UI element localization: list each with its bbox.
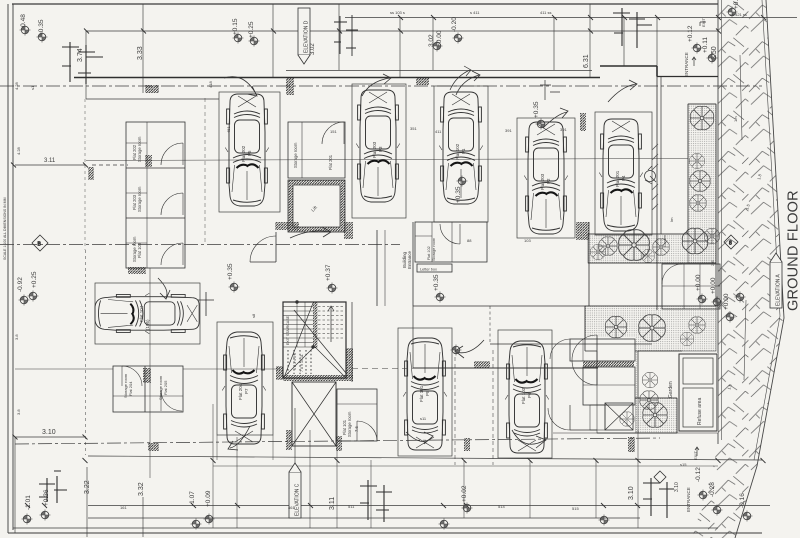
svg-text:P7: P7 [244,388,249,394]
svg-text:Flat 203: Flat 203 [540,173,545,190]
svg-text:+0.12: +0.12 [687,25,694,42]
svg-text:Flat 201: Flat 201 [328,154,333,170]
svg-text:ss 103 s: ss 103 s [390,10,405,15]
svg-text:3.11: 3.11 [44,158,56,164]
svg-text:Storage room: Storage room [137,136,142,162]
svg-text:3.22: 3.22 [84,480,91,494]
svg-text:411 ss: 411 ss [540,10,552,15]
svg-text:Letter box: Letter box [420,268,437,272]
svg-text:ss 421 ss: ss 421 ss [730,12,747,17]
svg-text:+0.00: +0.00 [723,293,730,310]
svg-text:6.31: 6.31 [583,54,590,68]
svg-text:P1: P1 [461,148,466,154]
svg-text:Flat 205: Flat 205 [163,380,168,395]
svg-text:+0.35: +0.35 [533,101,540,118]
svg-text:Storage room: Storage room [432,238,436,261]
svg-text:514: 514 [498,504,505,509]
svg-text:4.28: 4.28 [14,81,19,90]
svg-text:Flat 102: Flat 102 [427,246,431,260]
svg-text:7 8 9 10 11: 7 8 9 10 11 [300,354,304,372]
svg-text:3.33: 3.33 [137,46,144,60]
svg-text:Im: Im [669,217,674,222]
svg-text:P2: P2 [546,178,551,184]
svg-text:EXIT STAIRCASE: EXIT STAIRCASE [286,315,290,345]
svg-text:3.32: 3.32 [138,482,145,496]
svg-text:Flat 101: Flat 101 [419,385,424,402]
svg-text:Storage room: Storage room [137,186,142,212]
svg-text:+0.15: +0.15 [232,18,239,35]
svg-text:1 2 3 4 5 6: 1 2 3 4 5 6 [293,353,297,370]
svg-text:391: 391 [560,127,567,132]
svg-text:Garden: Garden [663,235,667,247]
svg-text:3.02: 3.02 [310,43,316,55]
svg-text:Flat 102: Flat 102 [455,143,460,160]
svg-text:+0.40: +0.40 [733,0,740,9]
svg-text:461: 461 [288,505,295,510]
svg-text:3.74: 3.74 [77,48,84,62]
svg-text:3.8: 3.8 [14,334,19,340]
svg-text:8: 8 [729,241,732,247]
svg-text:ENTRANCE: ENTRANCE [684,52,689,77]
svg-text:88: 88 [467,238,472,243]
svg-text:Flat 203: Flat 203 [372,141,377,158]
svg-text:4.28: 4.28 [16,146,21,155]
svg-text:P3: P3 [378,146,383,152]
svg-text:515: 515 [572,506,579,511]
svg-text:Storage room: Storage room [347,411,352,437]
svg-text:ELEVATION D: ELEVATION D [304,20,310,53]
svg-text:ELEVATION A: ELEVATION A [776,274,782,306]
svg-text:511: 511 [348,504,355,509]
svg-text:3.10: 3.10 [42,429,56,436]
svg-text:Flat 103: Flat 103 [137,242,142,258]
svg-text:+0.25: +0.25 [248,21,255,38]
svg-text:Entrance: Entrance [407,250,412,269]
svg-text:161: 161 [120,505,127,510]
svg-text:ELEVATION C: ELEVATION C [295,483,301,516]
svg-text:-0.12: -0.12 [695,467,702,482]
svg-text:+0.35: +0.35 [433,274,440,291]
svg-text:ENTRANCE: ENTRANCE [686,487,691,512]
svg-text:3.10: 3.10 [628,486,635,500]
svg-text:+0.25: +0.25 [31,271,38,288]
svg-text:151: 151 [330,129,337,134]
svg-text:-1.01: -1.01 [25,495,32,510]
svg-text:Flat 202: Flat 202 [241,145,246,162]
svg-text:s11: s11 [420,416,427,421]
svg-text:P4: P4 [621,175,626,181]
svg-text:-0.92: -0.92 [17,277,24,292]
svg-text:(105): (105) [145,319,150,330]
svg-text:+0.09: +0.09 [205,490,212,507]
svg-text:P8: P8 [425,390,430,396]
svg-text:+0.02: +0.02 [461,485,468,502]
svg-text:GROUND FLOOR: GROUND FLOOR [786,190,800,311]
svg-text:3.10: 3.10 [674,482,680,492]
svg-text:7.6: 7.6 [354,426,359,432]
svg-text:-1.07: -1.07 [189,491,196,506]
svg-text:3.11: 3.11 [329,497,336,510]
svg-text:3.8: 3.8 [16,409,21,415]
svg-text:-0.28: -0.28 [709,482,716,497]
svg-text:s15: s15 [680,462,687,467]
svg-text:s 411: s 411 [470,10,480,15]
svg-text:Refuse area: Refuse area [697,398,703,425]
svg-text:391: 391 [505,128,512,133]
svg-text:+0.37: +0.37 [325,264,332,281]
svg-text:Flat 103: Flat 103 [521,387,526,404]
svg-text:451: 451 [226,126,231,133]
svg-text:Flat 204: Flat 204 [238,383,243,400]
svg-text:Flat 104: Flat 104 [139,305,144,322]
svg-text:P5: P5 [247,150,252,156]
svg-text:+0.35: +0.35 [227,263,234,280]
svg-text:1m: 1m [733,116,738,122]
svg-text:+0.36: +0.36 [43,489,50,506]
svg-text:+0.35: +0.35 [455,186,462,203]
svg-text:-0.16: -0.16 [739,493,746,508]
svg-text:418: 418 [208,81,213,88]
svg-text:+0.00: +0.00 [695,274,702,291]
svg-text:Storage room: Storage room [293,142,298,168]
svg-text:411: 411 [435,129,442,134]
svg-text:-0.20: -0.20 [451,17,458,32]
svg-text:P6: P6 [527,392,532,398]
svg-text:+0.00: +0.00 [710,277,717,294]
svg-text:SCALE 1:100 ALL DIMENSIONS IN: SCALE 1:100 ALL DIMENSIONS IN MM [3,197,7,260]
svg-text:351: 351 [410,126,417,131]
svg-text:Flat 204: Flat 204 [128,381,133,396]
svg-text:+0.11: +0.11 [702,37,709,53]
svg-text:2.6: 2.6 [710,260,715,266]
svg-text:Flat 201: Flat 201 [615,170,620,187]
svg-text:103: 103 [524,238,531,243]
svg-text:Garden: Garden [668,381,674,398]
